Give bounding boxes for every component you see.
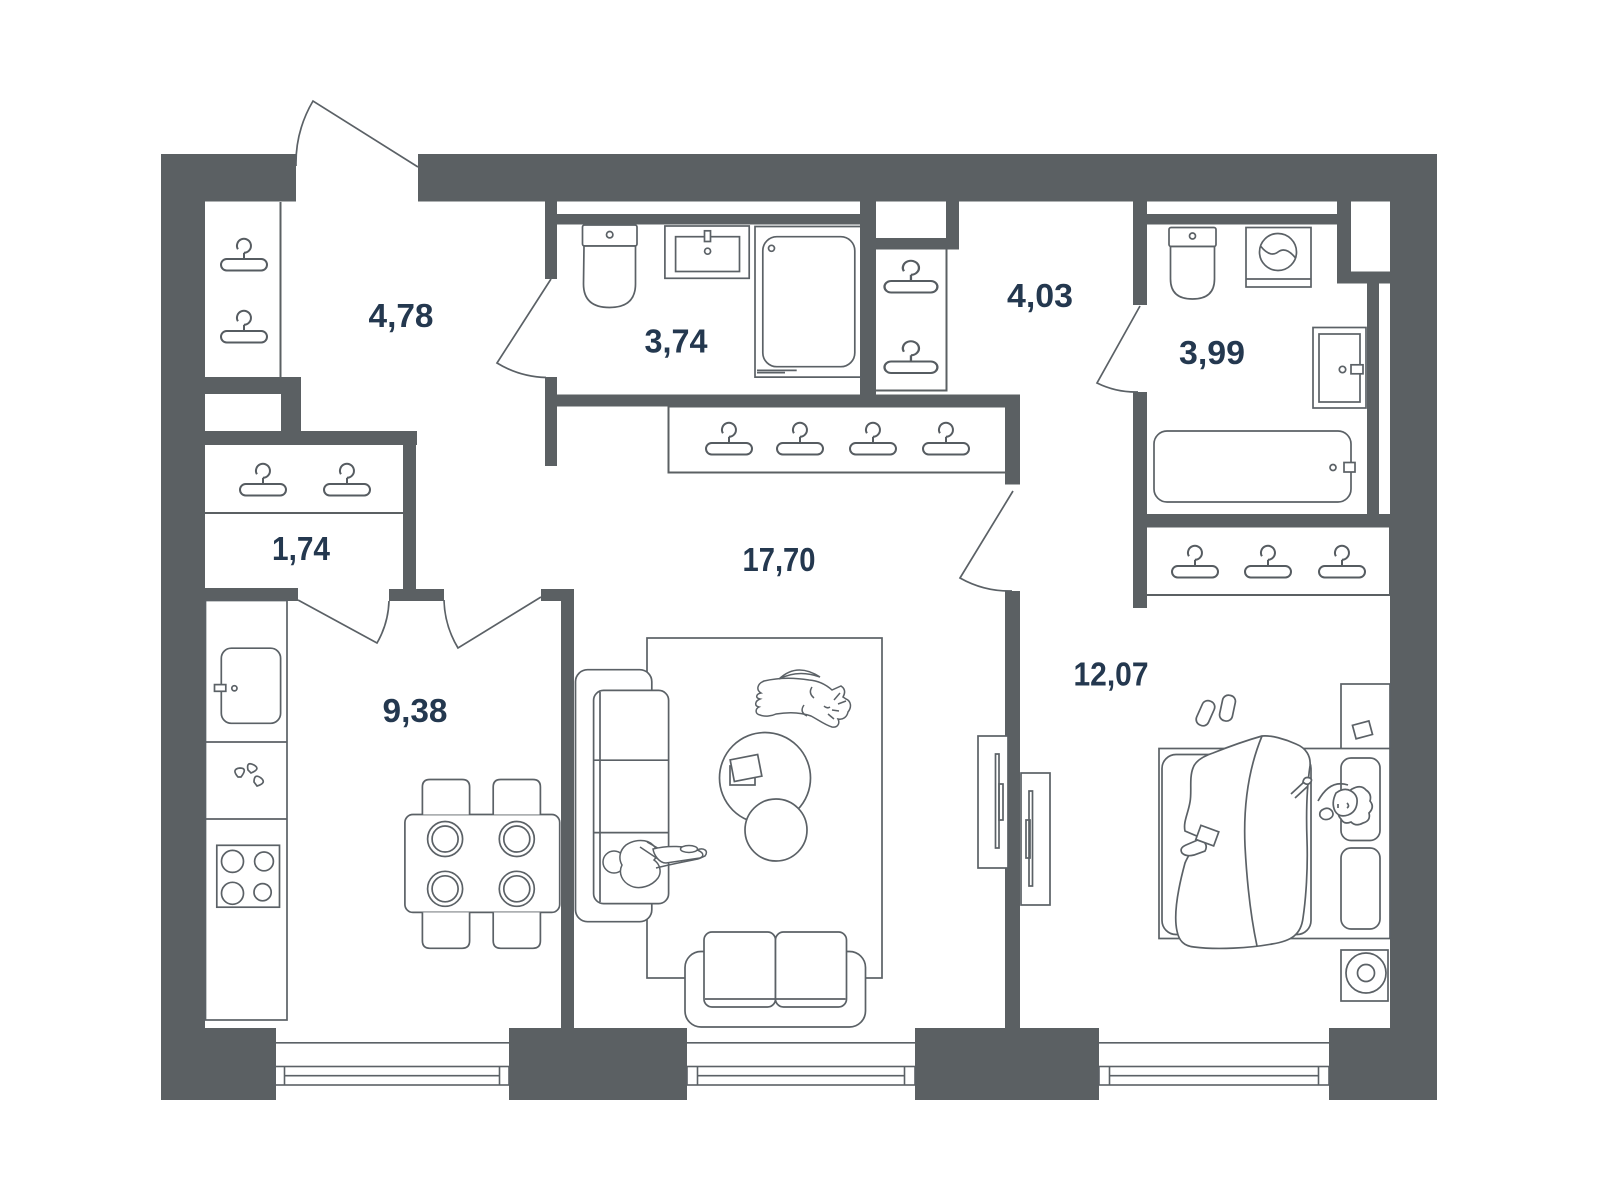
svg-text:12,07: 12,07	[1074, 657, 1149, 694]
svg-text:17,70: 17,70	[743, 542, 816, 579]
svg-text:4,03: 4,03	[1007, 278, 1073, 315]
svg-text:3,99: 3,99	[1179, 335, 1245, 372]
svg-text:3,74: 3,74	[645, 324, 708, 361]
svg-text:4,78: 4,78	[369, 298, 434, 335]
svg-text:1,74: 1,74	[272, 531, 330, 568]
svg-text:9,38: 9,38	[383, 693, 448, 730]
